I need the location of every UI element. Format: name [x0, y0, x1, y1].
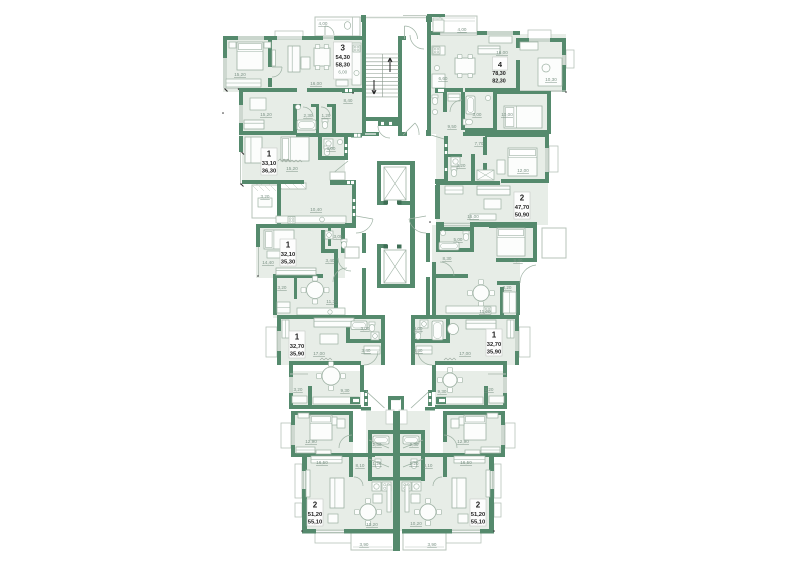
svg-text:12,00: 12,00 [517, 168, 529, 173]
svg-text:3,00: 3,00 [327, 146, 336, 151]
svg-text:9,30: 9,30 [341, 388, 350, 393]
svg-text:10,40: 10,40 [310, 207, 322, 212]
svg-text:17,00: 17,00 [313, 351, 325, 356]
svg-text:16,00: 16,00 [310, 81, 322, 86]
svg-text:58,30: 58,30 [335, 63, 350, 69]
svg-text:16,50: 16,50 [316, 460, 328, 465]
svg-text:15,20: 15,20 [286, 166, 298, 171]
svg-text:8,40: 8,40 [344, 98, 353, 103]
svg-text:82,30: 82,30 [492, 79, 506, 85]
svg-text:8,10: 8,10 [424, 463, 433, 468]
svg-text:55,10: 55,10 [471, 520, 486, 526]
svg-text:1,20: 1,20 [322, 113, 331, 118]
svg-text:51,20: 51,20 [308, 512, 323, 518]
svg-text:3,40: 3,40 [362, 348, 371, 353]
svg-text:3,20: 3,20 [278, 285, 287, 290]
svg-text:9,50: 9,50 [448, 124, 457, 129]
svg-text:8,30: 8,30 [443, 256, 452, 261]
svg-text:1: 1 [267, 150, 272, 159]
svg-text:3,20: 3,20 [294, 387, 303, 392]
svg-text:3,00: 3,00 [334, 234, 343, 239]
svg-text:2,30: 2,30 [410, 442, 419, 447]
svg-text:11,30: 11,30 [326, 299, 338, 304]
svg-text:36,30: 36,30 [262, 169, 277, 175]
svg-text:35,90: 35,90 [487, 350, 502, 356]
svg-text:35,30: 35,30 [281, 260, 296, 266]
svg-text:9,40: 9,40 [514, 258, 523, 263]
svg-text:4,00: 4,00 [319, 21, 328, 26]
svg-text:78,30: 78,30 [492, 71, 506, 77]
svg-text:5,00: 5,00 [454, 237, 463, 242]
svg-text:50,90: 50,90 [515, 213, 530, 219]
svg-text:17,00: 17,00 [459, 351, 471, 356]
svg-text:55,10: 55,10 [308, 520, 323, 526]
svg-text:3,00: 3,00 [473, 112, 482, 117]
svg-text:2: 2 [313, 501, 318, 510]
svg-text:6,60: 6,60 [439, 76, 448, 81]
svg-text:9,30: 9,30 [438, 389, 447, 394]
svg-text:32,70: 32,70 [290, 344, 305, 350]
svg-text:3,20: 3,20 [503, 285, 512, 290]
svg-text:2,30: 2,30 [373, 442, 382, 447]
svg-text:3,20: 3,20 [485, 387, 494, 392]
svg-text:1,20: 1,20 [373, 461, 382, 466]
svg-text:7,70: 7,70 [475, 141, 484, 146]
svg-text:54,30: 54,30 [335, 55, 350, 61]
svg-text:3,00: 3,00 [361, 326, 370, 331]
svg-text:8,10: 8,10 [356, 463, 365, 468]
svg-text:10,20: 10,20 [410, 521, 422, 526]
svg-text:3,90: 3,90 [360, 542, 369, 547]
svg-text:10,00: 10,00 [501, 112, 513, 117]
svg-text:1,20: 1,20 [410, 461, 419, 466]
svg-text:11,00: 11,00 [479, 309, 491, 314]
svg-text:3,20: 3,20 [261, 194, 270, 199]
svg-text:16,50: 16,50 [460, 460, 472, 465]
svg-text:3,40: 3,40 [326, 258, 335, 263]
svg-text:4,00: 4,00 [458, 27, 467, 32]
svg-text:10,30: 10,30 [545, 77, 557, 82]
svg-text:33,10: 33,10 [262, 161, 277, 167]
svg-text:32,70: 32,70 [487, 342, 502, 348]
svg-text:2: 2 [520, 194, 525, 203]
svg-text:14,40: 14,40 [262, 260, 274, 265]
svg-text:15,20: 15,20 [234, 72, 246, 77]
svg-text:1: 1 [286, 241, 291, 250]
svg-text:35,90: 35,90 [290, 352, 305, 358]
svg-text:10,20: 10,20 [366, 522, 378, 527]
svg-text:2,30: 2,30 [304, 113, 313, 118]
svg-text:1: 1 [492, 331, 497, 340]
svg-text:15,20: 15,20 [260, 112, 272, 117]
svg-text:16,00: 16,00 [467, 214, 479, 219]
svg-text:47,70: 47,70 [515, 205, 530, 211]
svg-text:3,90: 3,90 [428, 542, 437, 547]
svg-text:3,00: 3,00 [414, 326, 423, 331]
svg-text:51,20: 51,20 [471, 512, 486, 518]
svg-text:6,00: 6,00 [338, 70, 347, 75]
svg-text:12,90: 12,90 [305, 439, 317, 444]
svg-text:16,00: 16,00 [496, 50, 508, 55]
svg-text:32,10: 32,10 [281, 252, 296, 258]
svg-text:3: 3 [341, 44, 346, 53]
svg-text:1: 1 [295, 333, 300, 342]
svg-text:2: 2 [476, 501, 481, 510]
svg-text:12,90: 12,90 [457, 439, 469, 444]
svg-text:3,20: 3,20 [457, 163, 466, 168]
